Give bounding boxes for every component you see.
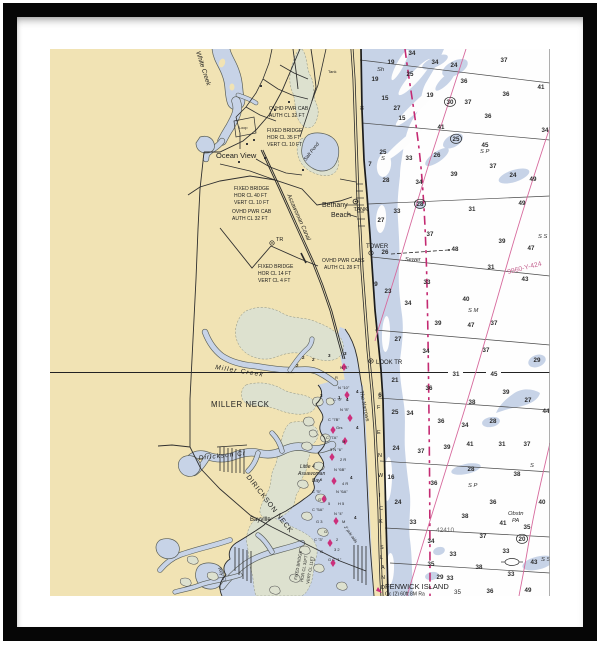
svg-text:37: 37 bbox=[483, 347, 490, 354]
svg-text:28: 28 bbox=[417, 201, 424, 208]
svg-text:Sewer: Sewer bbox=[405, 257, 422, 263]
svg-text:S M: S M bbox=[468, 308, 478, 314]
svg-text:C "5A": C "5A" bbox=[312, 507, 324, 512]
svg-text:9: 9 bbox=[374, 281, 378, 288]
svg-text:47: 47 bbox=[528, 245, 535, 252]
svg-text:19: 19 bbox=[427, 92, 434, 99]
svg-text:49: 49 bbox=[519, 200, 526, 207]
svg-text:37: 37 bbox=[491, 320, 498, 327]
svg-text:G: G bbox=[324, 529, 327, 534]
svg-text:27: 27 bbox=[525, 397, 532, 404]
svg-text:45: 45 bbox=[491, 371, 498, 378]
svg-text:26: 26 bbox=[434, 152, 441, 159]
svg-text:34: 34 bbox=[462, 422, 469, 429]
svg-text:35: 35 bbox=[524, 524, 531, 531]
svg-text:N: N bbox=[381, 575, 385, 581]
svg-text:C "3": C "3" bbox=[314, 537, 324, 542]
svg-text:FIXED BRIDGE: FIXED BRIDGE bbox=[258, 264, 294, 270]
svg-text:L: L bbox=[380, 555, 383, 561]
svg-text:24: 24 bbox=[451, 62, 458, 69]
svg-text:33: 33 bbox=[406, 155, 413, 162]
svg-text:Ocean View: Ocean View bbox=[216, 151, 257, 160]
svg-text:31: 31 bbox=[488, 264, 495, 271]
svg-text:23: 23 bbox=[385, 288, 392, 295]
svg-text:N: N bbox=[378, 453, 382, 459]
svg-text:40: 40 bbox=[539, 499, 546, 506]
svg-text:Obstn: Obstn bbox=[508, 511, 523, 517]
svg-text:37: 37 bbox=[490, 163, 497, 170]
svg-text:27: 27 bbox=[395, 336, 402, 343]
svg-text:25: 25 bbox=[380, 149, 387, 156]
svg-text:37: 37 bbox=[418, 448, 425, 455]
svg-text:34: 34 bbox=[542, 127, 549, 134]
svg-text:G C "1": G C "1" bbox=[328, 557, 342, 562]
svg-text:33: 33 bbox=[508, 571, 515, 578]
svg-text:Little 4: Little 4 bbox=[300, 464, 315, 470]
svg-text:43: 43 bbox=[522, 276, 529, 283]
svg-text:40: 40 bbox=[463, 296, 470, 303]
svg-text:4 R: 4 R bbox=[342, 481, 348, 486]
svg-text:48: 48 bbox=[452, 246, 459, 253]
svg-text:41: 41 bbox=[500, 520, 507, 527]
svg-text:Bethany: Bethany bbox=[322, 202, 348, 209]
svg-text:G 3: G 3 bbox=[316, 519, 323, 524]
svg-text:3 2: 3 2 bbox=[334, 547, 340, 552]
svg-text:38: 38 bbox=[476, 564, 483, 571]
svg-text:2 R: 2 R bbox=[340, 457, 346, 462]
svg-text:34: 34 bbox=[405, 300, 412, 307]
svg-text:19: 19 bbox=[372, 76, 379, 83]
svg-text:26: 26 bbox=[382, 249, 389, 256]
svg-text:N "10": N "10" bbox=[338, 385, 350, 390]
svg-text:34: 34 bbox=[409, 50, 416, 57]
svg-text:HOR CL 35 FT: HOR CL 35 FT bbox=[267, 135, 300, 141]
svg-text:36: 36 bbox=[426, 385, 433, 392]
svg-text:N "8": N "8" bbox=[340, 407, 350, 412]
svg-text:24: 24 bbox=[395, 499, 402, 506]
svg-text:AUTH CL 32 FT: AUTH CL 32 FT bbox=[232, 216, 268, 222]
svg-text:G: G bbox=[320, 549, 323, 554]
svg-text:25: 25 bbox=[453, 136, 460, 143]
svg-text:49: 49 bbox=[525, 587, 532, 594]
svg-text:36: 36 bbox=[461, 78, 468, 85]
svg-text:36: 36 bbox=[485, 113, 492, 120]
svg-text:S: S bbox=[381, 156, 385, 162]
svg-text:3 N "6": 3 N "6" bbox=[330, 447, 343, 452]
svg-text:C "7A": C "7A" bbox=[326, 435, 338, 440]
svg-text:33: 33 bbox=[503, 548, 510, 555]
svg-text:36: 36 bbox=[503, 91, 510, 98]
svg-text:25: 25 bbox=[392, 409, 399, 416]
svg-text:TANK: TANK bbox=[354, 207, 369, 213]
svg-text:S: S bbox=[380, 545, 384, 551]
svg-text:6: 6 bbox=[378, 392, 382, 399]
svg-text:VERT CL 10 FT: VERT CL 10 FT bbox=[234, 200, 269, 206]
svg-text:N "4": N "4" bbox=[334, 511, 344, 516]
svg-text:35: 35 bbox=[454, 589, 461, 596]
svg-text:34: 34 bbox=[423, 348, 430, 355]
svg-text:33: 33 bbox=[424, 279, 431, 286]
svg-text:R: R bbox=[335, 375, 338, 380]
svg-text:TOWER: TOWER bbox=[366, 244, 389, 250]
svg-text:47: 47 bbox=[468, 322, 475, 329]
svg-text:FIXED BRIDGE: FIXED BRIDGE bbox=[234, 186, 270, 192]
svg-text:37: 37 bbox=[480, 533, 487, 540]
svg-text:33: 33 bbox=[450, 551, 457, 558]
svg-text:C: C bbox=[379, 506, 383, 512]
svg-text:G: G bbox=[318, 497, 321, 502]
svg-text:VERT CL 4 FT: VERT CL 4 FT bbox=[258, 278, 290, 284]
svg-text:OVHD PWR CAB: OVHD PWR CAB bbox=[232, 209, 272, 215]
svg-text:39: 39 bbox=[451, 171, 458, 178]
svg-text:Tank: Tank bbox=[328, 69, 336, 74]
svg-text:45: 45 bbox=[482, 142, 489, 149]
svg-text:28: 28 bbox=[468, 466, 475, 473]
svg-text:7: 7 bbox=[368, 161, 372, 168]
svg-text:15: 15 bbox=[399, 115, 406, 122]
svg-text:27: 27 bbox=[394, 105, 401, 112]
svg-text:Loop: Loop bbox=[239, 126, 247, 130]
svg-text:FIXED BRIDGE: FIXED BRIDGE bbox=[267, 128, 303, 134]
svg-text:FENWICK ISLAND: FENWICK ISLAND bbox=[385, 582, 449, 591]
svg-text:VERT CL 10 FT: VERT CL 10 FT bbox=[267, 142, 302, 148]
svg-text:30: 30 bbox=[447, 99, 454, 106]
svg-text:38: 38 bbox=[469, 399, 476, 406]
svg-text:39: 39 bbox=[503, 389, 510, 396]
svg-text:M: M bbox=[342, 439, 345, 444]
svg-text:LOOK TR: LOOK TR bbox=[376, 360, 403, 366]
svg-text:Oc (2) 60ft 8M Ra: Oc (2) 60ft 8M Ra bbox=[385, 592, 425, 597]
svg-text:19: 19 bbox=[388, 59, 395, 66]
svg-text:33: 33 bbox=[447, 575, 454, 582]
svg-text:MILLER NECK: MILLER NECK bbox=[211, 400, 270, 409]
svg-text:37: 37 bbox=[524, 441, 531, 448]
svg-text:E: E bbox=[377, 430, 381, 436]
svg-text:S P: S P bbox=[480, 149, 489, 155]
svg-text:HOR CL 40 FT: HOR CL 40 FT bbox=[234, 193, 267, 199]
svg-text:31: 31 bbox=[469, 206, 476, 213]
svg-text:37: 37 bbox=[501, 57, 508, 64]
svg-text:24: 24 bbox=[510, 172, 517, 179]
svg-text:15: 15 bbox=[382, 95, 389, 102]
svg-text:N "6B": N "6B" bbox=[334, 467, 346, 472]
svg-text:29: 29 bbox=[534, 357, 541, 364]
svg-text:Grs: Grs bbox=[336, 425, 342, 430]
svg-text:34: 34 bbox=[432, 59, 439, 66]
svg-text:S S: S S bbox=[541, 557, 550, 563]
svg-text:41: 41 bbox=[538, 84, 545, 91]
svg-text:A: A bbox=[381, 565, 385, 571]
svg-text:43: 43 bbox=[531, 559, 538, 566]
svg-text:S P: S P bbox=[468, 483, 477, 489]
svg-text:28: 28 bbox=[490, 418, 497, 425]
svg-text:33: 33 bbox=[394, 208, 401, 215]
svg-text:HOR CL 14 FT: HOR CL 14 FT bbox=[258, 271, 291, 277]
svg-text:28: 28 bbox=[383, 177, 390, 184]
svg-text:36: 36 bbox=[487, 588, 494, 595]
svg-text:OVHD PWR CAB: OVHD PWR CAB bbox=[269, 106, 309, 112]
svg-text:Beach: Beach bbox=[331, 212, 351, 219]
svg-text:34: 34 bbox=[428, 538, 435, 545]
svg-text:C "7B": C "7B" bbox=[328, 417, 340, 422]
svg-text:29: 29 bbox=[437, 574, 444, 581]
svg-text:24: 24 bbox=[393, 445, 400, 452]
svg-text:44: 44 bbox=[543, 408, 550, 415]
svg-text:S: S bbox=[530, 463, 534, 469]
svg-text:39: 39 bbox=[444, 444, 451, 451]
svg-text:H 5: H 5 bbox=[338, 501, 345, 506]
svg-text:C "5": C "5" bbox=[312, 489, 322, 494]
svg-text:36: 36 bbox=[431, 480, 438, 487]
svg-text:31: 31 bbox=[453, 371, 460, 378]
svg-text:37: 37 bbox=[427, 231, 434, 238]
svg-text:33: 33 bbox=[410, 519, 417, 526]
svg-text:36: 36 bbox=[490, 499, 497, 506]
svg-text:21: 21 bbox=[392, 377, 399, 384]
svg-text:38: 38 bbox=[514, 471, 521, 478]
svg-text:42410: 42410 bbox=[436, 527, 454, 534]
svg-text:S S: S S bbox=[538, 234, 547, 240]
svg-text:W: W bbox=[378, 473, 384, 479]
svg-text:8: 8 bbox=[360, 105, 364, 112]
svg-text:OVHD PWR CABS: OVHD PWR CABS bbox=[322, 258, 365, 264]
svg-text:N "6A": N "6A" bbox=[336, 489, 348, 494]
svg-text:AUTH CL 32 FT: AUTH CL 32 FT bbox=[269, 113, 305, 119]
svg-text:20: 20 bbox=[519, 536, 526, 543]
svg-text:38: 38 bbox=[462, 513, 469, 520]
svg-text:34: 34 bbox=[407, 410, 414, 417]
svg-text:49: 49 bbox=[530, 176, 537, 183]
svg-text:Bayville: Bayville bbox=[250, 517, 271, 523]
svg-text:N "1": N "1" bbox=[340, 365, 350, 370]
svg-text:PA: PA bbox=[512, 518, 519, 524]
svg-text:TR: TR bbox=[276, 237, 283, 243]
svg-text:K: K bbox=[379, 519, 383, 525]
svg-text:39: 39 bbox=[435, 320, 442, 327]
svg-text:25: 25 bbox=[407, 71, 414, 78]
svg-text:37: 37 bbox=[465, 99, 472, 106]
svg-text:35: 35 bbox=[428, 561, 435, 568]
svg-text:41: 41 bbox=[467, 441, 474, 448]
svg-text:39: 39 bbox=[499, 238, 506, 245]
svg-text:31: 31 bbox=[499, 441, 506, 448]
svg-text:36: 36 bbox=[438, 418, 445, 425]
svg-text:27: 27 bbox=[378, 217, 385, 224]
svg-text:34: 34 bbox=[416, 179, 423, 186]
svg-text:AUTH CL 28 FT: AUTH CL 28 FT bbox=[324, 265, 360, 271]
svg-text:M: M bbox=[342, 519, 345, 524]
svg-text:Sh: Sh bbox=[377, 67, 384, 73]
svg-text:16: 16 bbox=[388, 474, 395, 481]
svg-text:41: 41 bbox=[438, 124, 445, 131]
